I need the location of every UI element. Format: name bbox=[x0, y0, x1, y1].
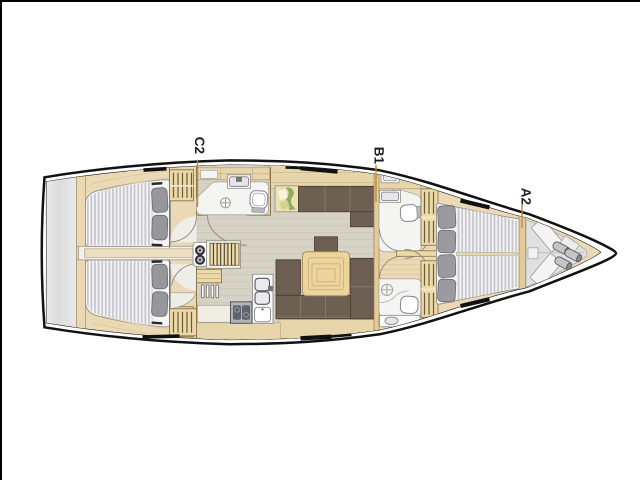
svg-text:B1: B1 bbox=[372, 147, 387, 165]
svg-text:C2: C2 bbox=[192, 137, 207, 154]
svg-text:A2: A2 bbox=[519, 188, 534, 205]
